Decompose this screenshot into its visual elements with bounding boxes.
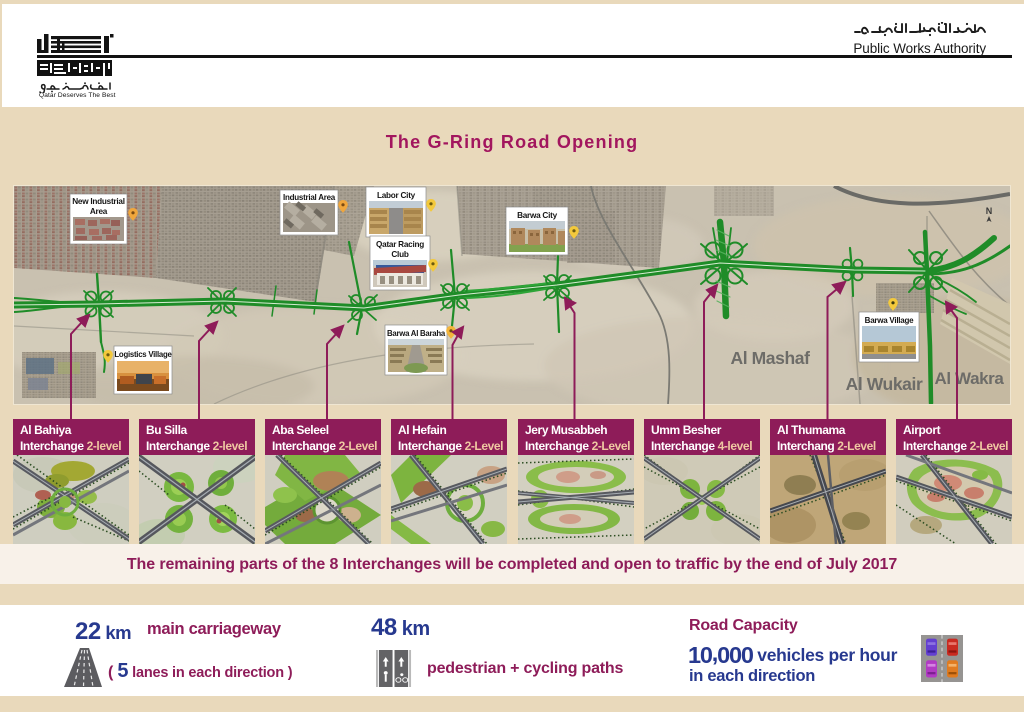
- svg-text:Barwa City: Barwa City: [517, 211, 558, 220]
- svg-text:New Industrial: New Industrial: [72, 197, 124, 206]
- svg-text:N: N: [986, 206, 993, 216]
- svg-text:Club: Club: [391, 250, 408, 259]
- svg-text:Barwa Village: Barwa Village: [865, 316, 914, 325]
- svg-text:Industrial Area: Industrial Area: [283, 193, 336, 202]
- svg-text:Al Wakra: Al Wakra: [935, 369, 1005, 388]
- svg-text:Labor City: Labor City: [377, 191, 416, 200]
- svg-text:Qatar Racing: Qatar Racing: [376, 240, 424, 249]
- svg-text:Logistics Village: Logistics Village: [114, 350, 172, 359]
- svg-text:Barwa Al Baraha: Barwa Al Baraha: [387, 329, 446, 338]
- svg-text:Al Mashaf: Al Mashaf: [730, 348, 810, 368]
- svg-text:Area: Area: [90, 207, 108, 216]
- svg-text:Al Wukair: Al Wukair: [846, 374, 923, 394]
